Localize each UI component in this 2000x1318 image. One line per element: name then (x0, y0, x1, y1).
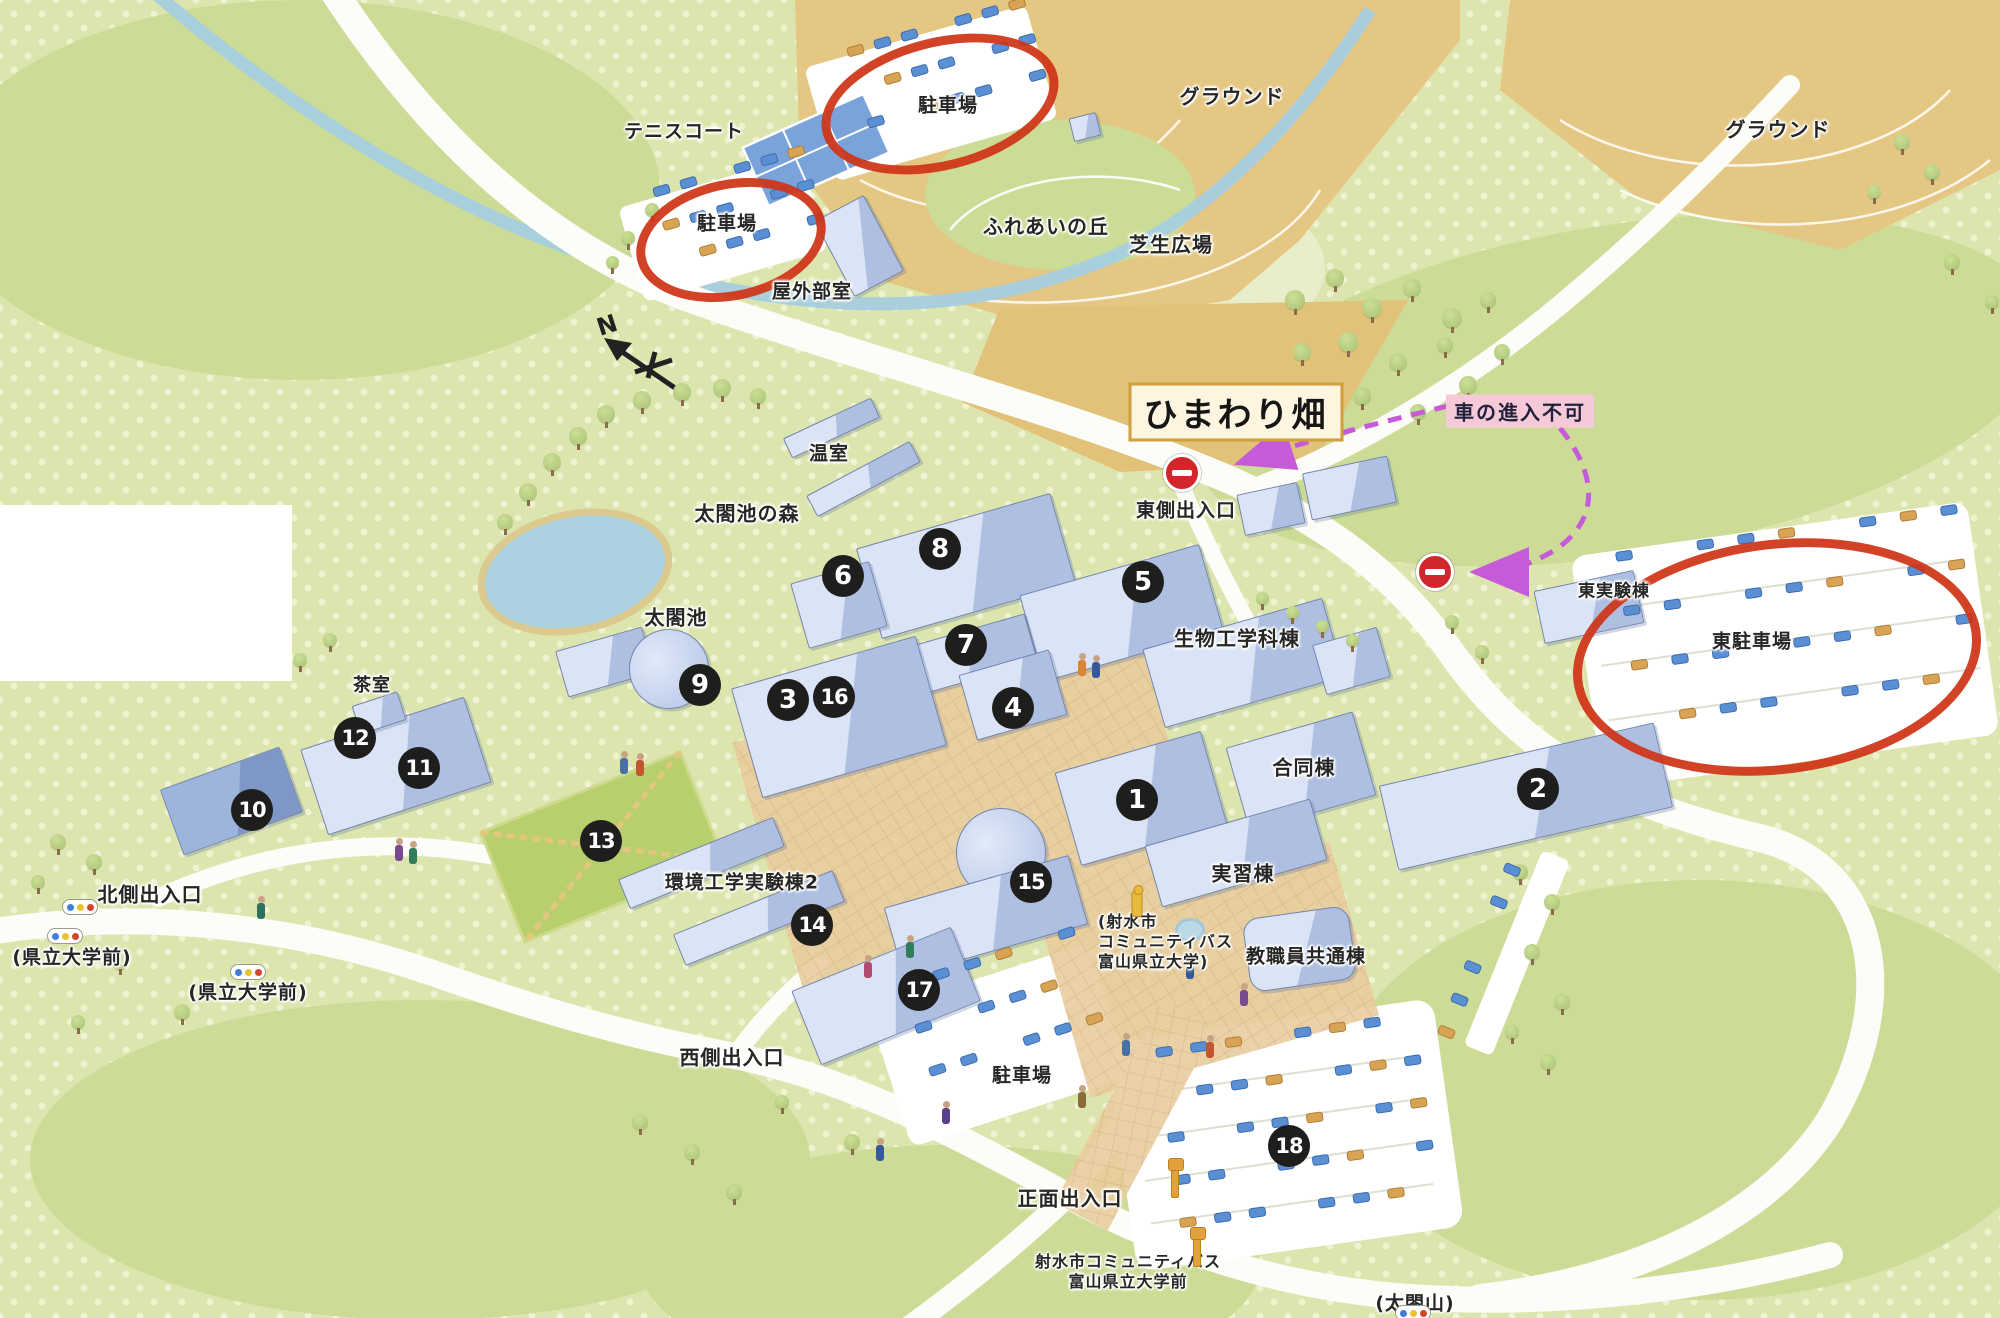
car-icon (1463, 959, 1483, 975)
person-icon (1078, 1092, 1086, 1108)
map-label-taiko-pond-forest: 太閤池の森 (695, 498, 800, 527)
tree-icon (497, 514, 513, 530)
traffic-light-icon (1395, 1305, 1431, 1318)
tree-icon (673, 383, 691, 401)
person-icon (1078, 660, 1086, 676)
building-badge-6: 6 (822, 555, 864, 597)
tree-icon (713, 379, 731, 397)
car-icon (1346, 1149, 1364, 1161)
tree-icon (1410, 404, 1426, 420)
tree-icon (174, 1004, 190, 1020)
tree-icon (1867, 185, 1881, 199)
car-icon (1450, 992, 1470, 1008)
car-icon (1328, 1021, 1346, 1033)
map-label-fureai-hill: ふれあいの丘 (983, 211, 1109, 240)
tree-icon (750, 388, 766, 404)
map-label-lawn-plaza: 芝生広場 (1129, 229, 1213, 258)
map-label-east-gate: 東側出入口 (1136, 496, 1236, 523)
car-icon (1334, 1064, 1352, 1076)
tree-icon (1505, 1025, 1519, 1039)
tree-icon (1346, 634, 1359, 647)
building-badge-5: 5 (1122, 561, 1164, 603)
sunflower-field-label: ひまわり畑 (1129, 383, 1344, 442)
car-icon (1777, 527, 1795, 539)
traffic-light-icon (62, 899, 98, 915)
person-icon (257, 903, 265, 919)
map-label-parking-south: 駐車場 (992, 1061, 1052, 1088)
tree-icon (1480, 292, 1496, 308)
tree-icon (1459, 376, 1477, 394)
map-label-ground-east: グラウンド (1726, 114, 1831, 143)
car-icon (1294, 1026, 1312, 1038)
car-icon (1404, 1054, 1422, 1066)
car-icon (1085, 1011, 1104, 1026)
tree-icon (1442, 308, 1462, 328)
car-icon (1489, 894, 1509, 910)
person-icon (1240, 990, 1248, 1006)
tree-icon (1285, 290, 1305, 310)
map-label-main-gate: 正面出入口 (1018, 1183, 1123, 1212)
person-icon (1122, 1040, 1130, 1056)
car-icon (1615, 550, 1633, 562)
map-label-ground-north: グラウンド (1180, 81, 1285, 110)
tree-icon (632, 1114, 648, 1130)
statue-icon (1132, 891, 1143, 917)
car-icon (1437, 1024, 1457, 1040)
car-icon (1363, 1016, 1381, 1028)
building-badge-3: 3 (767, 679, 809, 721)
tree-icon (323, 633, 337, 647)
no-entry-sign-icon (1416, 553, 1454, 591)
car-icon (1940, 504, 1958, 516)
building-badge-2: 2 (1517, 768, 1559, 810)
tree-icon (1389, 353, 1407, 371)
car-icon (1214, 1211, 1232, 1223)
person-icon (620, 758, 628, 774)
tree-icon (50, 834, 66, 850)
car-icon (1039, 979, 1058, 994)
map-label-parking-west: 駐車場 (697, 209, 757, 236)
tree-icon (633, 391, 651, 409)
building-badge-14: 14 (791, 904, 833, 946)
tree-icon (621, 231, 635, 245)
building-badge-11: 11 (398, 747, 440, 789)
tree-icon (844, 1134, 860, 1150)
map-label-greenhouse: 温室 (809, 439, 849, 466)
tree-icon (1316, 620, 1329, 633)
tree-icon (1544, 894, 1560, 910)
building-badge-4: 4 (992, 687, 1034, 729)
car-icon (1022, 1032, 1041, 1047)
map-label-east-parking: 東駐車場 (1712, 627, 1792, 654)
compass-n-label: N (593, 309, 621, 342)
blank-panel (0, 505, 292, 681)
tree-icon (684, 1144, 700, 1160)
tree-icon (1475, 645, 1489, 659)
no-entry-sign-icon (1163, 454, 1201, 492)
car-icon (1155, 1046, 1173, 1058)
tree-icon (1437, 337, 1453, 353)
tree-icon (606, 256, 619, 269)
tree-icon (519, 483, 537, 501)
person-icon (409, 848, 417, 864)
person-icon (864, 962, 872, 978)
car-icon (977, 999, 996, 1014)
map-label-tennis-court: テニスコート (624, 117, 744, 144)
car-icon (928, 1062, 947, 1077)
tree-icon (726, 1184, 742, 1200)
building-badge-1: 1 (1116, 779, 1158, 821)
tree-icon (1293, 343, 1311, 361)
map-label-taiko-pond: 太閤池 (645, 602, 708, 631)
tree-icon (597, 405, 615, 423)
tree-icon (1286, 606, 1299, 619)
building-badge-15: 15 (1010, 861, 1052, 903)
tree-icon (1326, 269, 1344, 287)
building-badge-8: 8 (919, 528, 961, 570)
map-label-jisshu-bldg: 実習棟 (1212, 858, 1275, 887)
tree-icon (1403, 279, 1421, 297)
tree-icon (1540, 1054, 1556, 1070)
map-label-bus-plaza: (射水市コミュニティバス富山県立大学) (1098, 912, 1233, 972)
building-badge-10: 10 (231, 789, 273, 831)
tree-icon (293, 653, 307, 667)
car-icon (1352, 1192, 1370, 1204)
car-icon (1859, 515, 1877, 527)
map-label-tea-room: 茶室 (353, 671, 391, 697)
traffic-light-icon (47, 928, 83, 944)
car-icon (1265, 1074, 1283, 1086)
car-icon (1312, 1154, 1330, 1166)
tree-icon (1445, 615, 1459, 629)
tree-icon (71, 1015, 85, 1029)
tree-icon (1944, 254, 1960, 270)
car-icon (1167, 1131, 1185, 1143)
car-icon (1947, 558, 1965, 570)
bus-stop-pole-icon (1193, 1237, 1201, 1267)
car-icon (1899, 510, 1917, 522)
building-badge-17: 17 (898, 969, 940, 1011)
car-icon (1410, 1097, 1428, 1109)
person-icon (942, 1108, 950, 1124)
map-label-bus-stop-kenritsu-2: (県立大学前) (188, 978, 307, 1005)
car-icon (1306, 1111, 1324, 1123)
tree-icon (1256, 592, 1269, 605)
tree-icon (86, 854, 102, 870)
car-icon (1236, 1121, 1254, 1133)
tree-icon (1985, 295, 1999, 309)
tree-icon (1362, 298, 1382, 318)
building-badge-7: 7 (945, 624, 987, 666)
no-car-entry-label: 車の進入不可 (1446, 395, 1594, 428)
person-icon (395, 845, 403, 861)
map-label-bio-engineering-bldg: 生物工学科棟 (1174, 623, 1300, 652)
map-label-bus-stop-kenritsu-1: (県立大学前) (12, 943, 131, 970)
person-icon (636, 760, 644, 776)
car-icon (1007, 0, 1026, 11)
car-icon (1318, 1196, 1336, 1208)
car-icon (1375, 1102, 1393, 1114)
tree-icon (1524, 944, 1540, 960)
car-icon (959, 1052, 978, 1067)
person-icon (1206, 1042, 1214, 1058)
car-icon (1196, 1083, 1214, 1095)
tree-icon (543, 453, 561, 471)
car-icon (1224, 1036, 1242, 1048)
car-icon (1230, 1078, 1248, 1090)
tree-icon (1494, 344, 1510, 360)
map-label-north-gate: 北側出入口 (98, 879, 203, 908)
car-icon (1208, 1169, 1226, 1181)
person-icon (1092, 662, 1100, 678)
tree-icon (1554, 994, 1570, 1010)
tree-icon (1924, 164, 1940, 180)
tree-icon (31, 875, 45, 889)
campus-map: N ひまわり畑 車の進入不可 グラウンドグラウンドテニスコート駐車場駐車場屋外部… (0, 0, 2000, 1318)
building-badge-16: 16 (813, 676, 855, 718)
car-icon (914, 1020, 933, 1035)
map-label-west-gate: 西側出入口 (680, 1042, 785, 1071)
car-icon (1053, 1022, 1072, 1037)
car-icon (1248, 1206, 1266, 1218)
car-icon (1387, 1187, 1405, 1199)
map-label-outdoor-clubrooms: 屋外部室 (772, 277, 852, 304)
car-icon (1008, 989, 1027, 1004)
car-icon (1369, 1059, 1387, 1071)
tree-icon (1338, 332, 1358, 352)
compass (604, 338, 678, 390)
building-badge-13: 13 (580, 820, 622, 862)
tree-icon (1353, 387, 1371, 405)
map-label-east-lab-bldg: 東実験棟 (1578, 577, 1650, 602)
building-badge-9: 9 (679, 664, 721, 706)
car-icon (1696, 538, 1714, 550)
person-icon (906, 942, 914, 958)
car-icon (1416, 1139, 1434, 1151)
building-badge-12: 12 (334, 717, 376, 759)
person-icon (876, 1145, 884, 1161)
map-label-env-eng-lab2: 環境工学実験棟2 (665, 868, 819, 895)
map-label-parking-top: 駐車場 (918, 91, 978, 118)
building-badge-18: 18 (1268, 1125, 1310, 1167)
tree-icon (569, 427, 587, 445)
bus-stop-pole-icon (1171, 1168, 1179, 1198)
tree-icon (775, 1095, 789, 1109)
map-label-staff-common-bldg: 教職員共通棟 (1246, 942, 1366, 969)
traffic-light-icon (230, 964, 266, 980)
map-label-godo-bldg: 合同棟 (1273, 752, 1336, 781)
tree-icon (1894, 134, 1910, 150)
